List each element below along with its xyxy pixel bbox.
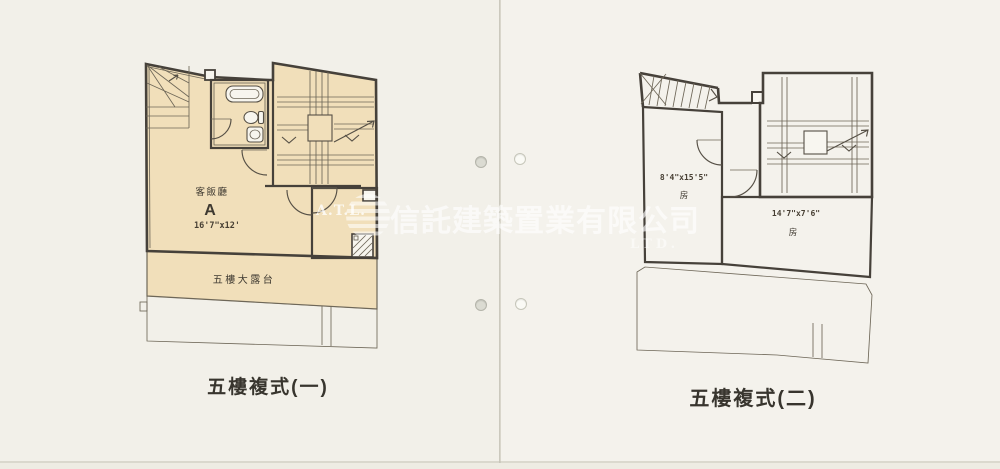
plan2-stair-strip: [640, 73, 763, 109]
plan2-bedroom1-dimensions: 8'4"x15'5": [660, 173, 708, 182]
binder-hole: [475, 299, 487, 311]
plan-2-caption: 五樓複式(二): [628, 382, 878, 411]
binder-hole: [515, 298, 527, 310]
ac-louver-unit: [352, 234, 373, 257]
plan2-bedroom1: [643, 107, 722, 264]
plan1-dimensions-label: 16'7"x12': [194, 221, 240, 231]
plan1-wall-notch: [205, 70, 215, 80]
sink-fixture: [247, 127, 263, 142]
plan2-bedroom2-name: 房: [789, 227, 798, 237]
floor-plan-1-drawing: 客飯廳 A 16'7"x12' 五樓大露台: [131, 55, 391, 355]
plan1-unit-label: A: [204, 202, 216, 219]
plan1-terrace-label: 五樓大露台: [213, 273, 276, 286]
floor-plan-2-drawing: 8'4"x15'5" 房 14'7"x7'6" 房: [628, 58, 883, 373]
plan2-bedroom1-door: [697, 140, 722, 165]
window-box: [363, 190, 376, 201]
toilet-fixture: [244, 112, 264, 124]
binder-hole: [475, 156, 487, 168]
plan-1-caption: 五樓複式(一): [143, 372, 393, 399]
plan2-lower-roof-outline: [637, 267, 872, 363]
scanned-brochure-page: 客飯廳 A 16'7"x12' 五樓大露台: [0, 0, 1000, 469]
scanner-background-strip: [0, 463, 1000, 469]
plan1-room-name-label: 客飯廳: [195, 186, 228, 198]
stair-landing-box: [752, 92, 763, 103]
plan2-staircase: [760, 73, 872, 197]
plan2-corridor-door: [730, 170, 757, 197]
plan2-bedroom2-dimensions: 14'7"x7'6": [772, 209, 820, 218]
page-fold-line: [499, 0, 501, 463]
bathtub-fixture: [226, 86, 263, 102]
plan2-bedroom1-name: 房: [680, 190, 689, 200]
binder-hole: [514, 153, 526, 165]
